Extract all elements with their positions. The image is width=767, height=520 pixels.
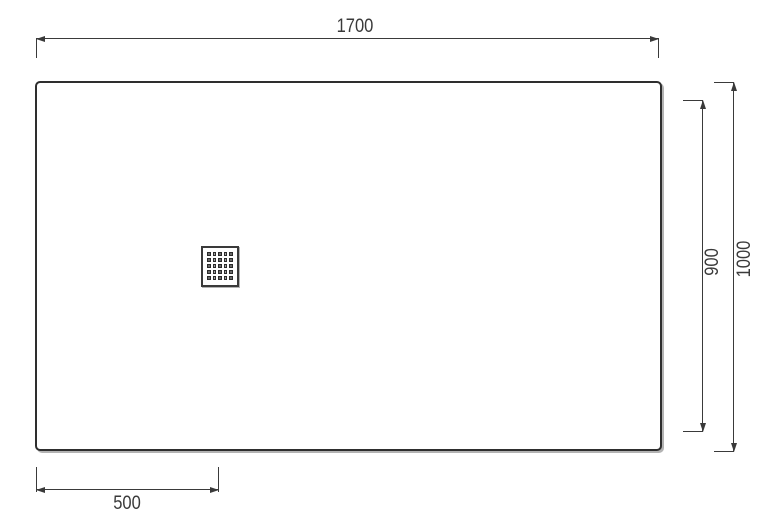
- drain-hole: [229, 258, 233, 262]
- drain-hole: [224, 270, 228, 274]
- arrowhead-up-icon: [731, 82, 737, 91]
- dimension-line: [36, 489, 219, 490]
- drain-hole: [218, 264, 222, 268]
- drain-hole: [213, 276, 217, 280]
- drain-hole: [229, 252, 233, 256]
- drain-hole: [229, 270, 233, 274]
- drain-hole: [224, 276, 228, 280]
- drain-hole: [213, 270, 217, 274]
- drain-hole: [218, 252, 222, 256]
- arrowhead-left-icon: [36, 36, 45, 42]
- drain-hole: [213, 252, 217, 256]
- drain-hole: [224, 264, 228, 268]
- arrowhead-down-icon: [700, 423, 706, 432]
- drain-hole: [229, 276, 233, 280]
- dimension-label-inner-height: 900: [703, 227, 723, 297]
- arrowhead-right-icon: [650, 36, 659, 42]
- drain-hole: [224, 258, 228, 262]
- drain-grate-holes: [207, 252, 233, 280]
- drain-hole: [224, 252, 228, 256]
- dimension-label-top-width: 1700: [312, 17, 399, 37]
- drain-hole: [213, 258, 217, 262]
- drain-hole: [207, 264, 211, 268]
- dimension-label-drain-offset: 500: [84, 494, 171, 514]
- drain-hole: [207, 252, 211, 256]
- dimension-label-overall-height: 1000: [735, 224, 755, 294]
- dimension-line: [36, 38, 659, 39]
- drain-hole: [218, 276, 222, 280]
- drain-hole: [229, 264, 233, 268]
- technical-drawing-canvas: 1700 1000 900 500: [0, 0, 767, 520]
- drain-hole: [207, 258, 211, 262]
- drain-hole: [218, 270, 222, 274]
- drain-hole: [207, 270, 211, 274]
- arrowhead-up-icon: [700, 100, 706, 109]
- arrowhead-left-icon: [36, 487, 45, 493]
- drain-hole: [207, 276, 211, 280]
- arrowhead-right-icon: [210, 487, 219, 493]
- shower-tray-outline: [35, 81, 662, 451]
- drain-hole: [218, 258, 222, 262]
- drain-hole: [213, 264, 217, 268]
- drain-grate: [201, 246, 239, 287]
- arrowhead-down-icon: [731, 443, 737, 452]
